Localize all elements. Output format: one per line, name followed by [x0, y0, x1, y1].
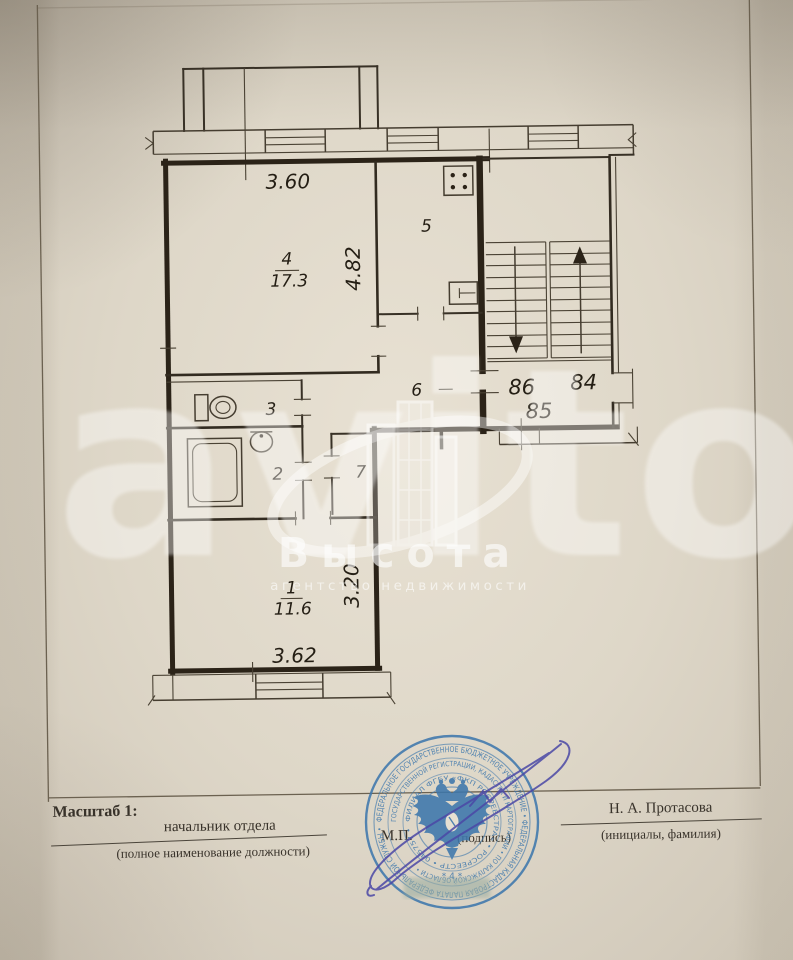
stamp-censored-area [404, 878, 490, 898]
scanned-floorplan-photo: 3.60 4.82 3.20 3.62 4 17.3 5 6 3 2 7 1 1… [0, 0, 793, 960]
stamp-layer: ФЕДЕРАЛЬНОЕ ГОСУДАРСТВЕННОЕ БЮДЖЕТНОЕ УЧ… [0, 0, 793, 960]
